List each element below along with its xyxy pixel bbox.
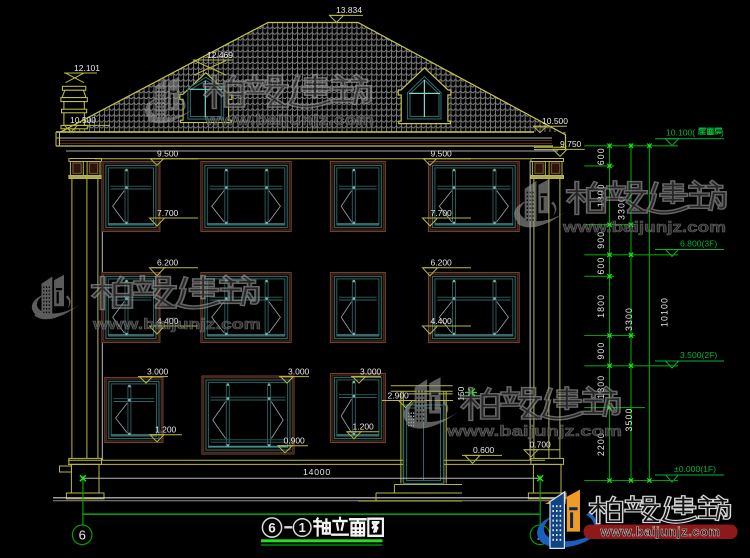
svg-text:4.400: 4.400 <box>431 316 453 326</box>
svg-text:1.200: 1.200 <box>353 422 375 432</box>
svg-text:www.baijunjz.com: www.baijunjz.com <box>204 113 374 129</box>
svg-text:2.900: 2.900 <box>388 390 410 400</box>
svg-text:900: 900 <box>596 342 606 360</box>
svg-text:14000: 14000 <box>303 467 331 477</box>
svg-text:1800: 1800 <box>596 294 606 318</box>
svg-text:10100: 10100 <box>660 297 670 327</box>
svg-text:3300: 3300 <box>624 307 634 331</box>
svg-text:0.600: 0.600 <box>473 445 495 455</box>
svg-text:12.469: 12.469 <box>207 50 233 60</box>
svg-text:600: 600 <box>596 257 606 275</box>
svg-text:7.700: 7.700 <box>157 208 179 218</box>
svg-text:www.baijunjz.com: www.baijunjz.com <box>562 220 726 236</box>
svg-text:3.000: 3.000 <box>360 366 382 376</box>
svg-text:): ) <box>721 128 724 138</box>
svg-text:1: 1 <box>299 520 306 535</box>
svg-text:6.800(3F): 6.800(3F) <box>680 238 717 248</box>
svg-text:3.000: 3.000 <box>147 366 169 376</box>
svg-text:±0.000(1F): ±0.000(1F) <box>674 464 716 474</box>
svg-text:3500: 3500 <box>624 408 634 432</box>
svg-text:10.500: 10.500 <box>542 116 568 126</box>
svg-text:13.834: 13.834 <box>336 5 362 15</box>
svg-text:3.500(2F): 3.500(2F) <box>680 350 717 360</box>
svg-text:www.baijunjz.com: www.baijunjz.com <box>92 317 261 333</box>
svg-text:6.200: 6.200 <box>431 258 453 268</box>
svg-text:10.500: 10.500 <box>70 115 96 125</box>
svg-text:www.baijunjz.com: www.baijunjz.com <box>599 524 720 539</box>
svg-text:www.baijunjz.com: www.baijunjz.com <box>446 424 622 440</box>
svg-text:6: 6 <box>268 520 276 535</box>
svg-text:7.700: 7.700 <box>431 208 453 218</box>
svg-text:9.750: 9.750 <box>560 139 582 149</box>
svg-text:9.500: 9.500 <box>431 149 453 159</box>
svg-text:0.900: 0.900 <box>284 436 306 446</box>
svg-text:6.200: 6.200 <box>157 258 179 268</box>
svg-text:12.101: 12.101 <box>74 63 100 73</box>
svg-text:1.200: 1.200 <box>155 425 177 435</box>
svg-text:9.500: 9.500 <box>157 149 179 159</box>
svg-text:6: 6 <box>79 527 86 542</box>
svg-text:600: 600 <box>596 147 606 165</box>
svg-text:3.000: 3.000 <box>288 366 310 376</box>
svg-text:10.100(: 10.100( <box>666 128 695 138</box>
svg-text:0.700: 0.700 <box>530 440 552 450</box>
